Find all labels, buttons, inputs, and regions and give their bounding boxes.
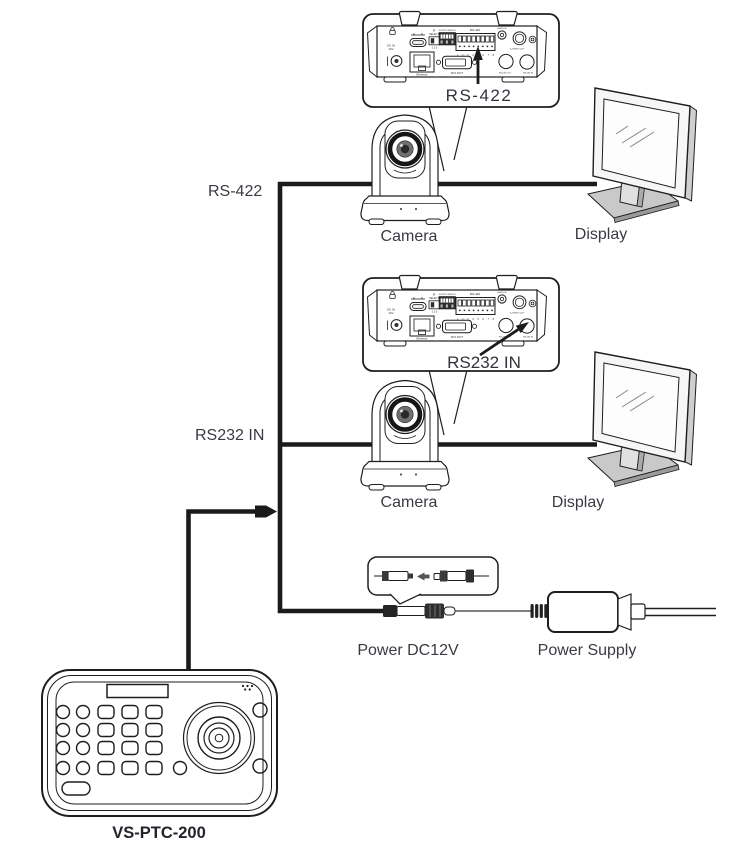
power-dc-label: Power DC12V — [357, 642, 459, 659]
display-1 — [588, 88, 697, 223]
power-supply-label: Power Supply — [538, 642, 637, 659]
controller-model-label: VS-PTC-200 — [112, 824, 206, 842]
rs422-and-power-line — [280, 184, 597, 611]
diagram-canvas: DC IN 12V IR SELECT 1 2 3 OUTPUT SW — [0, 0, 751, 861]
rs232-bus-label: RS232 IN — [195, 427, 264, 444]
controller-vs-ptc-200 — [42, 670, 277, 816]
power-supply-body — [548, 592, 618, 632]
power-section — [368, 557, 716, 632]
power-supply-unit — [531, 592, 717, 632]
cable-plug-arrow — [255, 506, 277, 518]
display-2-label: Display — [552, 494, 604, 511]
dc-power-connector — [383, 604, 455, 619]
camera-2-label: Camera — [381, 494, 438, 511]
controller-lcd — [107, 685, 168, 698]
display-2 — [588, 352, 697, 487]
camera-1-label: Camera — [381, 228, 438, 245]
callout-rs422-label: RS-422 — [446, 86, 513, 105]
controller-cable — [189, 512, 258, 671]
camera-1 — [361, 115, 449, 225]
display-1-label: Display — [575, 226, 627, 243]
bubble-tail — [390, 594, 421, 604]
rs422-bus-label: RS-422 — [208, 183, 262, 200]
diagram-page: DC IN 12V IR SELECT 1 2 3 OUTPUT SW — [0, 0, 751, 861]
callout-rs232-label: RS232 IN — [447, 353, 521, 372]
